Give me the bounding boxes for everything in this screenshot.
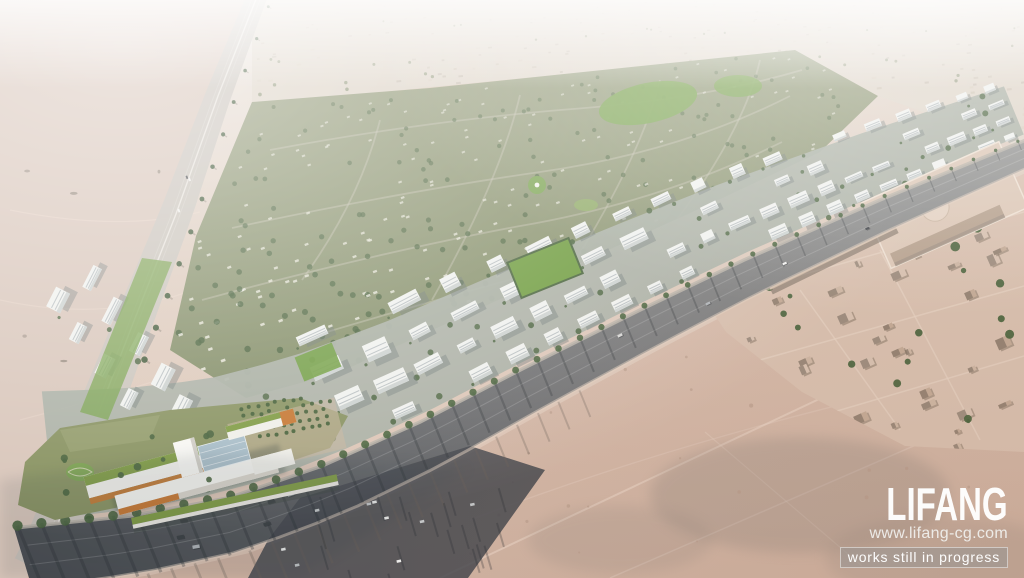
aerial-render: LIFANG www.lifang-cg.com works still in … (0, 0, 1024, 578)
studio-logo-text: LIFANG (887, 486, 1008, 524)
studio-url-text: www.lifang-cg.com (839, 526, 1008, 543)
watermark: LIFANG www.lifang-cg.com works still in … (839, 486, 1008, 568)
wip-badge: works still in progress (840, 547, 1008, 568)
